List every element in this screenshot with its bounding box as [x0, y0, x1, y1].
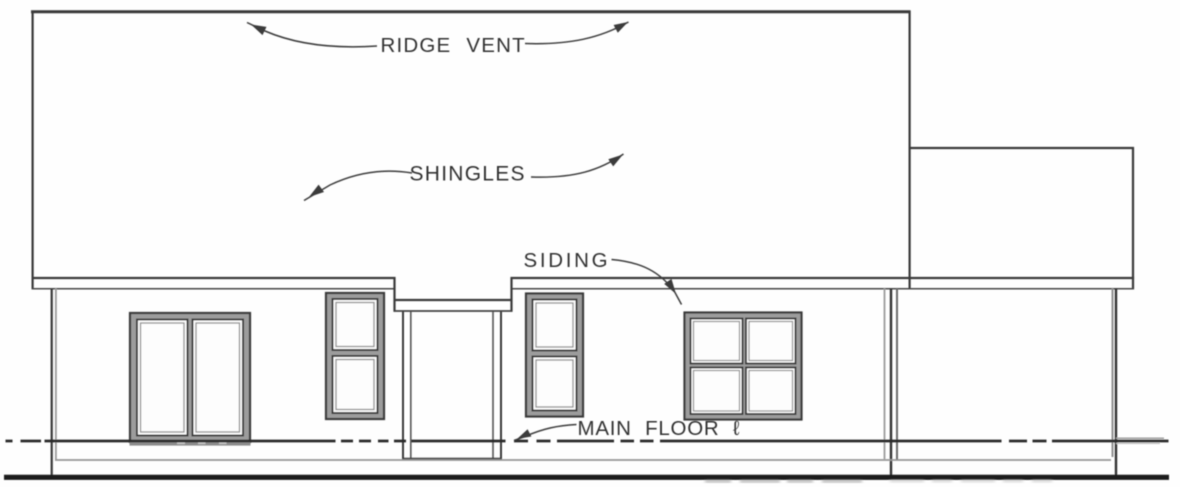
- svg-text:SIDING: SIDING: [524, 249, 611, 272]
- svg-text:MAIN FLOOR ℓ: MAIN FLOOR ℓ: [578, 417, 741, 440]
- svg-text:RIDGE VENT: RIDGE VENT: [381, 34, 526, 57]
- svg-text:SHINGLES: SHINGLES: [410, 163, 526, 186]
